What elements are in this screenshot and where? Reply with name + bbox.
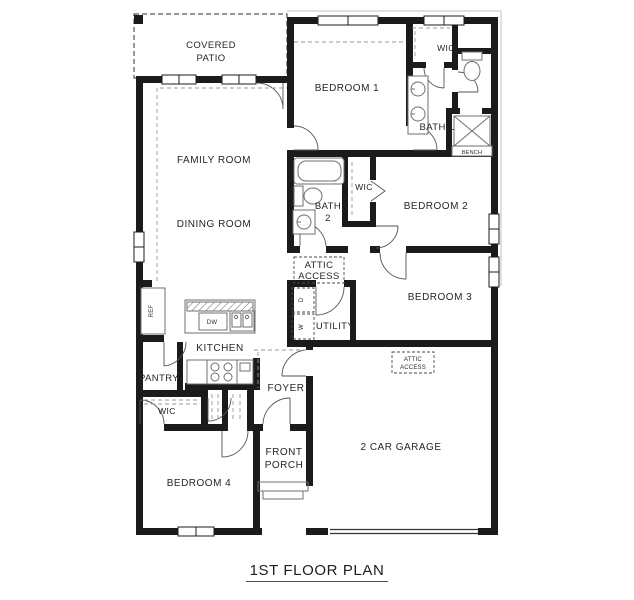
label-kitchen: KITCHEN bbox=[196, 343, 243, 354]
washer-fixture: W bbox=[292, 314, 314, 339]
label-dining-room: DINING ROOM bbox=[177, 219, 251, 230]
floor-plan-svg: BENCH DW REF D W bbox=[0, 0, 634, 600]
label-front-porch-2: PORCH bbox=[265, 460, 304, 471]
label-pantry: PANTRY bbox=[139, 373, 179, 384]
label-bedroom3: BEDROOM 3 bbox=[408, 292, 473, 303]
label-wic-master: WIC bbox=[437, 43, 455, 53]
label-bedroom4: BEDROOM 4 bbox=[167, 478, 232, 489]
label-utility: UTILITY bbox=[316, 321, 354, 332]
kitchen-island-fixture: DW bbox=[185, 300, 255, 333]
bath2-tub-fixture bbox=[294, 158, 344, 184]
label-bath2-2: 2 bbox=[325, 213, 331, 224]
label-garage: 2 CAR GARAGE bbox=[360, 442, 441, 453]
bench-fixture: BENCH bbox=[452, 146, 492, 156]
label-foyer: FOYER bbox=[268, 383, 305, 394]
dishwasher-label: DW bbox=[207, 320, 218, 326]
label-family-room: FAMILY ROOM bbox=[177, 155, 251, 166]
porch-steps-fixture bbox=[253, 476, 313, 499]
bath2-sink-fixture bbox=[293, 210, 315, 234]
label-bath2-1: BATH bbox=[315, 201, 341, 212]
label-wic-bed4: WIC bbox=[158, 406, 176, 416]
label-bedroom2: BEDROOM 2 bbox=[404, 201, 469, 212]
attic-access-hall: ATTIC ACCESS bbox=[294, 257, 344, 283]
patio-post bbox=[134, 15, 143, 24]
floor-plan-page: BENCH DW REF D W bbox=[0, 0, 634, 600]
label-front-porch-1: FRONT bbox=[266, 447, 303, 458]
label-covered-patio-1: COVERED bbox=[186, 40, 236, 51]
stove-fixture bbox=[187, 360, 253, 384]
plan-title-row: 1ST FLOOR PLAN bbox=[0, 562, 634, 582]
washer-label: W bbox=[299, 324, 305, 330]
bench-label: BENCH bbox=[462, 150, 483, 156]
label-covered-patio-2: PATIO bbox=[196, 53, 225, 64]
dryer-label: D bbox=[299, 297, 305, 302]
ref-label: REF bbox=[149, 305, 155, 318]
dryer-fixture: D bbox=[292, 288, 314, 312]
attic-access-garage-line1: ATTIC bbox=[404, 357, 422, 363]
garage-door bbox=[328, 528, 478, 535]
bath1-toilet-fixture bbox=[462, 52, 482, 81]
plan-title: 1ST FLOOR PLAN bbox=[246, 562, 389, 582]
attic-access-hall-line1: ATTIC bbox=[305, 260, 334, 271]
attic-access-garage-line2: ACCESS bbox=[400, 365, 426, 371]
refrigerator-fixture: REF bbox=[141, 288, 165, 334]
attic-access-hall-line2: ACCESS bbox=[298, 271, 339, 282]
label-bedroom1: BEDROOM 1 bbox=[315, 83, 380, 94]
attic-access-garage: ATTIC ACCESS bbox=[392, 352, 434, 373]
label-bath1: BATH 1 bbox=[420, 122, 455, 133]
shower-fixture bbox=[454, 116, 490, 146]
label-wic-bed2: WIC bbox=[355, 182, 373, 192]
